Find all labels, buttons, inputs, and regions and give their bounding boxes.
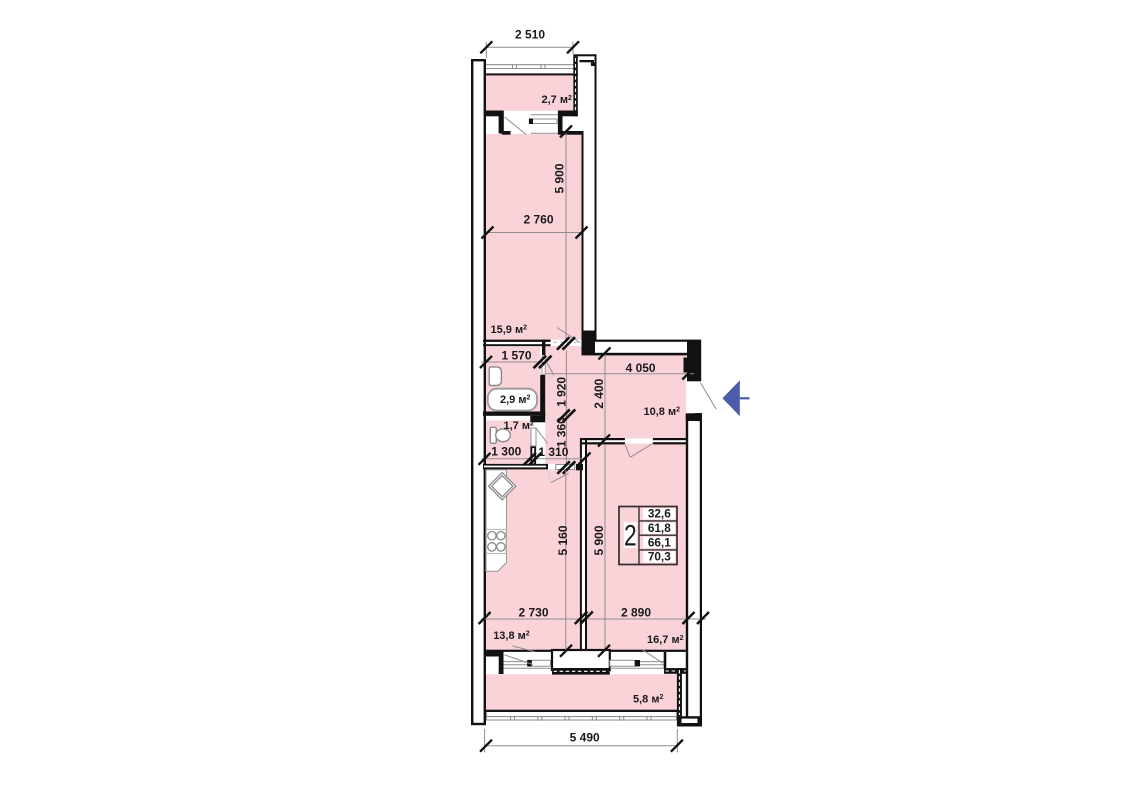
svg-text:1,7 м2: 1,7 м2: [504, 420, 535, 432]
svg-text:1 920: 1 920: [555, 377, 569, 407]
svg-text:70,3: 70,3: [648, 550, 671, 564]
svg-text:5 900: 5 900: [552, 163, 566, 193]
svg-text:15,9 м2: 15,9 м2: [491, 324, 528, 336]
svg-text:13,8 м2: 13,8 м2: [493, 630, 530, 642]
svg-text:4 050: 4 050: [626, 361, 656, 375]
svg-text:2 730: 2 730: [518, 606, 548, 620]
svg-text:2,7 м2: 2,7 м2: [542, 94, 573, 106]
svg-text:2: 2: [624, 518, 637, 552]
svg-text:2,9 м2: 2,9 м2: [500, 394, 531, 406]
svg-text:5 900: 5 900: [592, 525, 606, 555]
svg-text:66,1: 66,1: [648, 535, 671, 549]
svg-text:1 570: 1 570: [501, 349, 531, 363]
svg-text:5 490: 5 490: [570, 731, 600, 745]
svg-text:2 400: 2 400: [592, 378, 606, 408]
svg-text:16,7 м2: 16,7 м2: [647, 634, 684, 646]
svg-text:2 890: 2 890: [621, 606, 651, 620]
svg-text:1 360: 1 360: [555, 417, 569, 447]
svg-text:1 300: 1 300: [491, 444, 521, 458]
svg-text:32,6: 32,6: [648, 507, 671, 521]
svg-text:61,8: 61,8: [648, 521, 671, 535]
svg-text:1 310: 1 310: [538, 445, 568, 459]
svg-text:2 760: 2 760: [523, 212, 553, 226]
svg-text:2 510: 2 510: [515, 27, 545, 41]
svg-text:5 160: 5 160: [556, 525, 570, 555]
svg-text:5,8 м2: 5,8 м2: [633, 694, 664, 706]
svg-text:10,8 м2: 10,8 м2: [644, 406, 681, 418]
